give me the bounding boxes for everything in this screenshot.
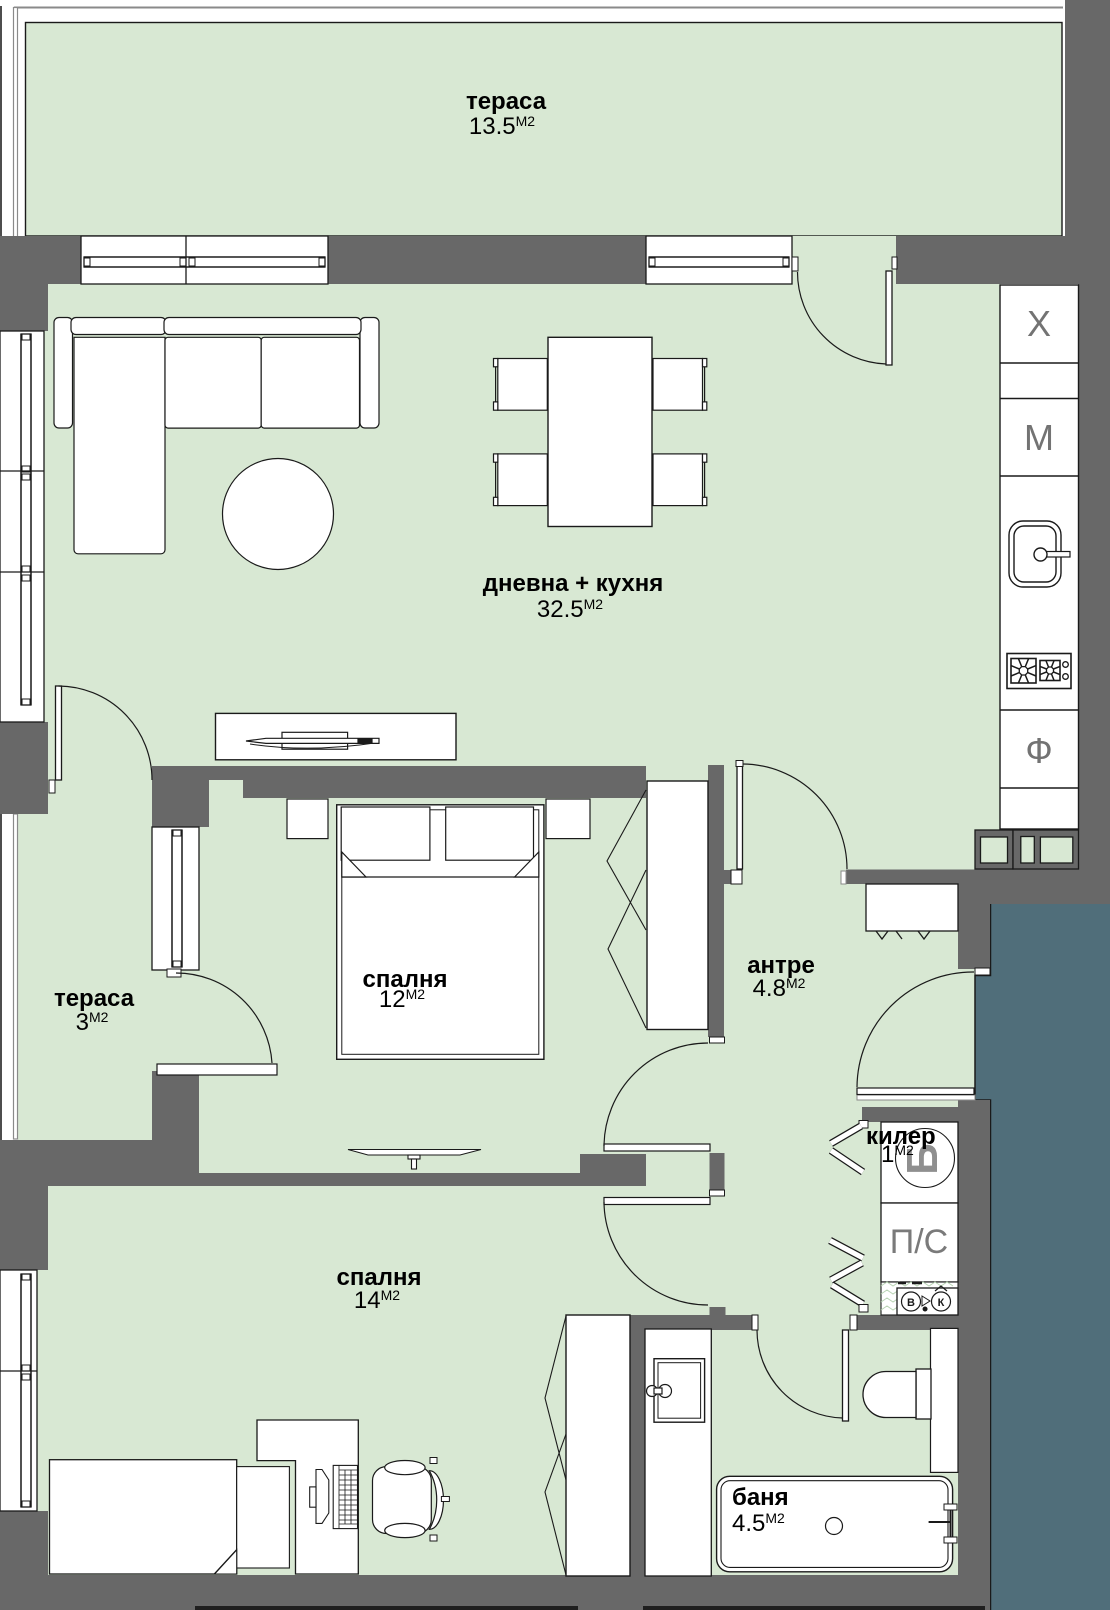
svg-text:тераса: тераса — [466, 88, 547, 115]
svg-text:П/С: П/С — [890, 1223, 948, 1261]
svg-text:дневна + кухня: дневна + кухня — [483, 570, 664, 597]
svg-text:X: X — [1027, 303, 1051, 344]
svg-text:Ф: Ф — [1025, 730, 1052, 771]
svg-text:К: К — [938, 1297, 945, 1309]
svg-text:M: M — [1024, 417, 1054, 458]
svg-text:баня: баня — [732, 1484, 789, 1511]
svg-text:В: В — [907, 1297, 915, 1309]
svg-text:тераса: тераса — [54, 985, 135, 1012]
